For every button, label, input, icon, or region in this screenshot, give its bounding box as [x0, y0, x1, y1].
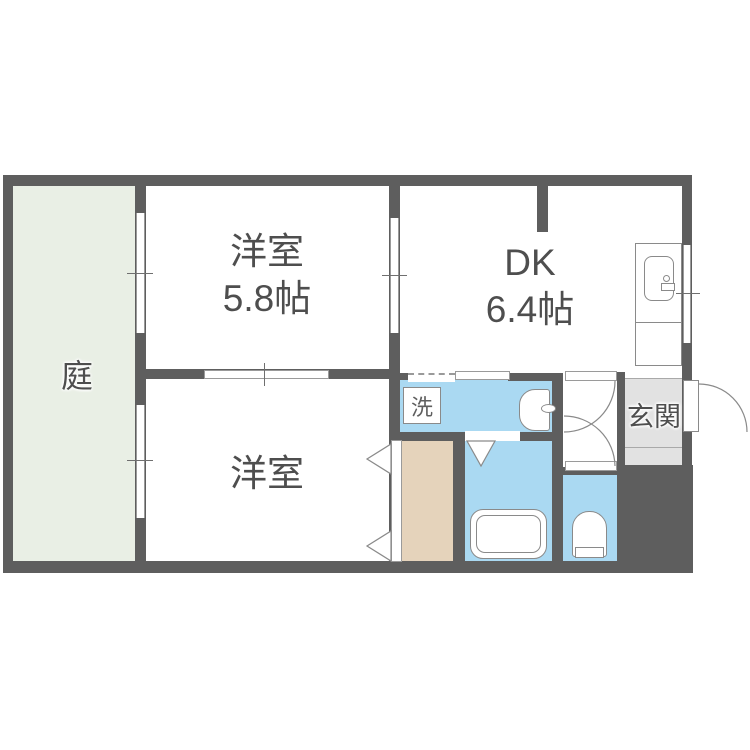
window-garden-west2 — [136, 405, 145, 518]
room-name: DK — [420, 239, 640, 286]
western-room-2-label: 洋室 — [157, 443, 377, 497]
window-tick — [127, 273, 153, 274]
opening-bathroom — [465, 431, 520, 441]
wall-closet-bath — [453, 441, 465, 561]
toilet-tank — [575, 547, 604, 558]
laundry-label: 洗 — [411, 390, 433, 422]
room-size: 6.4帖 — [420, 286, 640, 333]
wall-block-bottom-right — [617, 465, 693, 573]
window-dk-right — [683, 245, 691, 343]
wall-dk-bottom — [508, 373, 563, 381]
wall-top — [3, 175, 692, 186]
door-closet — [391, 440, 402, 562]
floorplan: 洗 庭 洋室 5.8帖 DK 6.4帖 洋室 玄関 — [0, 0, 750, 750]
door-tick — [264, 363, 265, 386]
closet — [400, 441, 453, 561]
dk-label: DK 6.4帖 — [420, 239, 640, 333]
entrance-label: 玄関 — [625, 395, 683, 434]
room-size: 5.8帖 — [157, 275, 377, 322]
wall-left — [3, 175, 13, 573]
garden-label: 庭 — [45, 351, 109, 397]
front-door-leaf — [683, 380, 699, 432]
wall-hall-entrance — [617, 372, 625, 472]
wall-stub-washroom — [400, 373, 408, 380]
wall-wet-hall — [552, 373, 563, 561]
entrance-step-line — [625, 447, 682, 448]
washing-machine-space: 洗 — [403, 387, 441, 424]
room-name: 洋室 — [157, 228, 377, 275]
western-room-1-label: 洋室 5.8帖 — [157, 228, 377, 322]
bathtub-inner — [476, 515, 541, 553]
kitchen-faucet — [663, 275, 670, 282]
window-tick — [676, 293, 700, 294]
window-tick — [127, 460, 153, 461]
window-tick — [382, 275, 407, 276]
kitchen-faucet-base — [661, 283, 675, 291]
sliding-door-west1-west2 — [204, 370, 329, 379]
opening-washroom-dashed — [408, 373, 455, 382]
hallway — [563, 378, 617, 467]
wall-stub-dk-top — [537, 186, 548, 232]
front-door-arc — [699, 384, 747, 432]
washbasin-faucet — [541, 404, 556, 413]
door-hallway-dk — [565, 371, 617, 381]
door-toilet — [565, 461, 617, 471]
kitchen-counter-divider — [636, 322, 681, 323]
door-washroom — [455, 371, 510, 380]
wall-bottom — [3, 561, 693, 573]
